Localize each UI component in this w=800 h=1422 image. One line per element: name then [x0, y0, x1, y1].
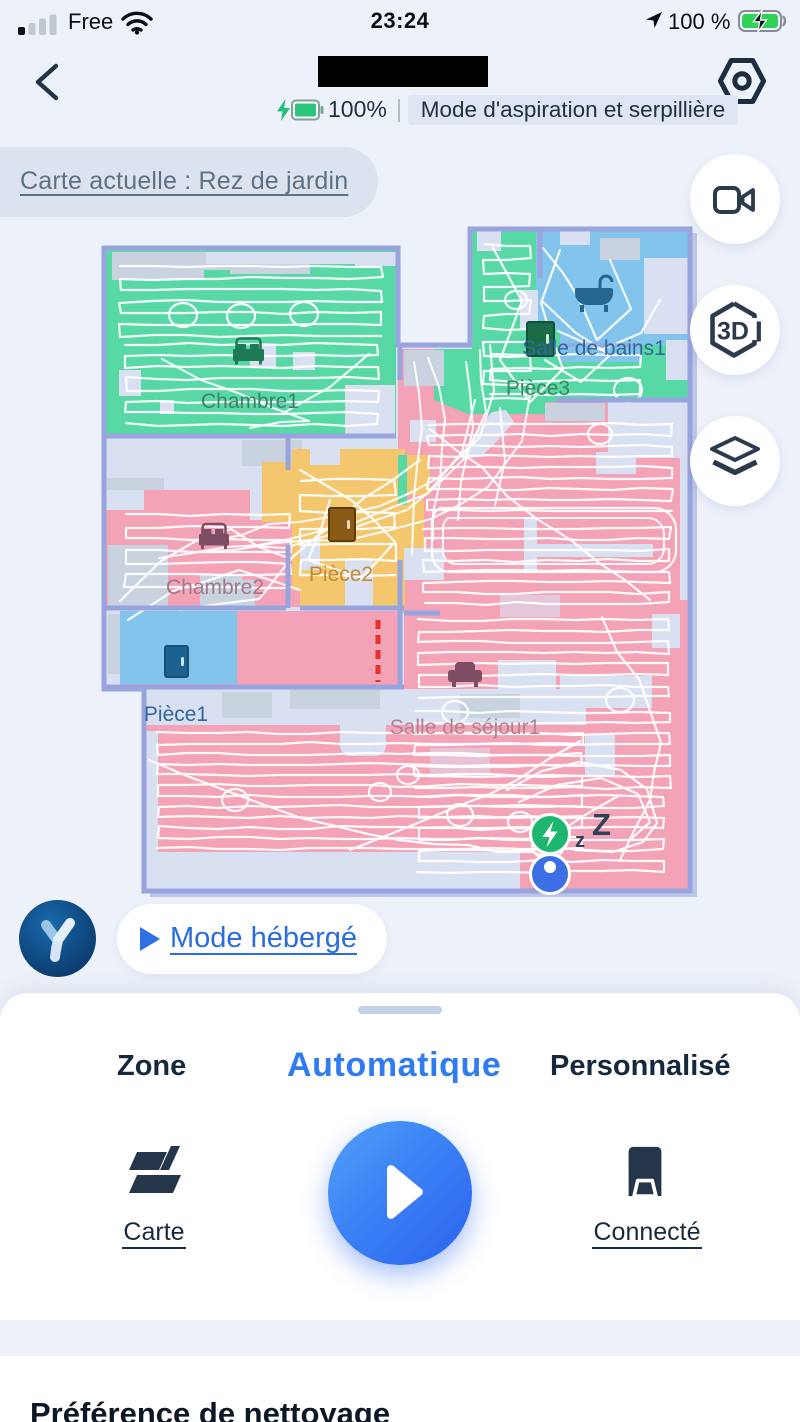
svg-text:Pièce2: Pièce2: [309, 563, 373, 586]
svg-text:Z: Z: [592, 807, 611, 842]
svg-text:z: z: [575, 830, 585, 852]
svg-text:Chambre1: Chambre1: [201, 390, 299, 413]
svg-text:Pièce1: Pièce1: [144, 703, 208, 726]
svg-text:Pièce3: Pièce3: [506, 377, 570, 400]
svg-text:Salle de bains1: Salle de bains1: [522, 337, 666, 360]
svg-text:3D: 3D: [717, 318, 749, 346]
svg-text:Chambre2: Chambre2: [166, 576, 264, 599]
svg-text:Salle de séjour1: Salle de séjour1: [390, 716, 541, 739]
